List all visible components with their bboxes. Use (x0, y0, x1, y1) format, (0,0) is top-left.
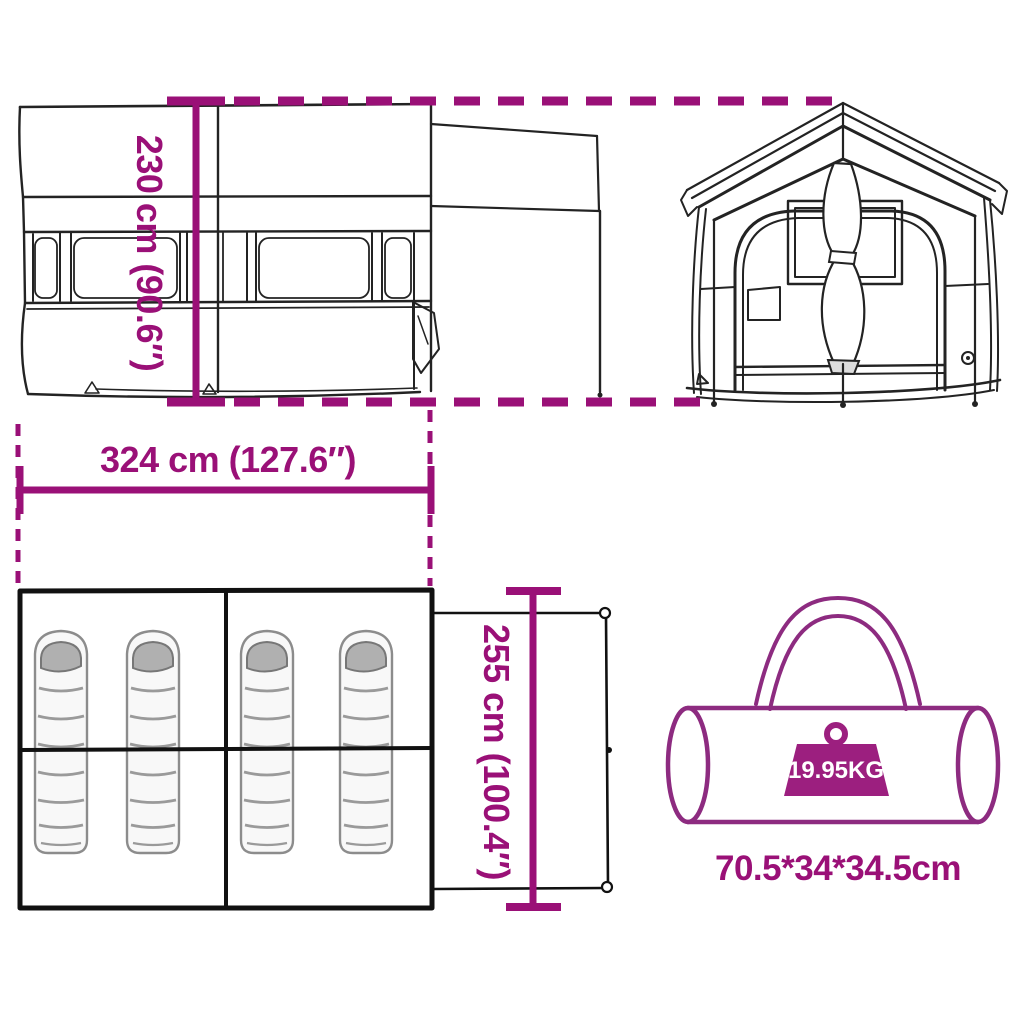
sleeping-bag-icon (35, 631, 87, 853)
height-dimension-label: 230 cm (90.6″) (128, 135, 170, 371)
width-dimension-label: 324 cm (127.6″) (100, 439, 356, 481)
guy-point (606, 747, 612, 753)
bag-handle (756, 598, 920, 704)
sleeping-bag-icon (340, 631, 392, 853)
sleeping-bag-icon (127, 631, 179, 853)
floorplan-drawing (20, 590, 432, 908)
tent-dimension-diagram: 230 cm (90.6″) 324 cm (127.6″) 255 cm (1… (0, 0, 1024, 1024)
bag-size-label: 70.5*34*34.5cm (715, 849, 961, 889)
awning-floorplan-drawing (434, 608, 612, 892)
awning-side-drawing (431, 124, 603, 398)
guy-point (600, 608, 610, 618)
tent-front-view-drawing (681, 103, 1007, 408)
awning-pole-foot (598, 393, 603, 398)
carry-bag-drawing (668, 598, 998, 822)
tent-side-view-drawing (19, 104, 439, 397)
height-dimension-line (167, 101, 225, 402)
sleeping-bag-icon (241, 631, 293, 853)
depth-dimension-label: 255 cm (100.4″) (475, 624, 517, 880)
guy-point (602, 882, 612, 892)
bag-weight-label: 19.95KG (788, 757, 884, 785)
